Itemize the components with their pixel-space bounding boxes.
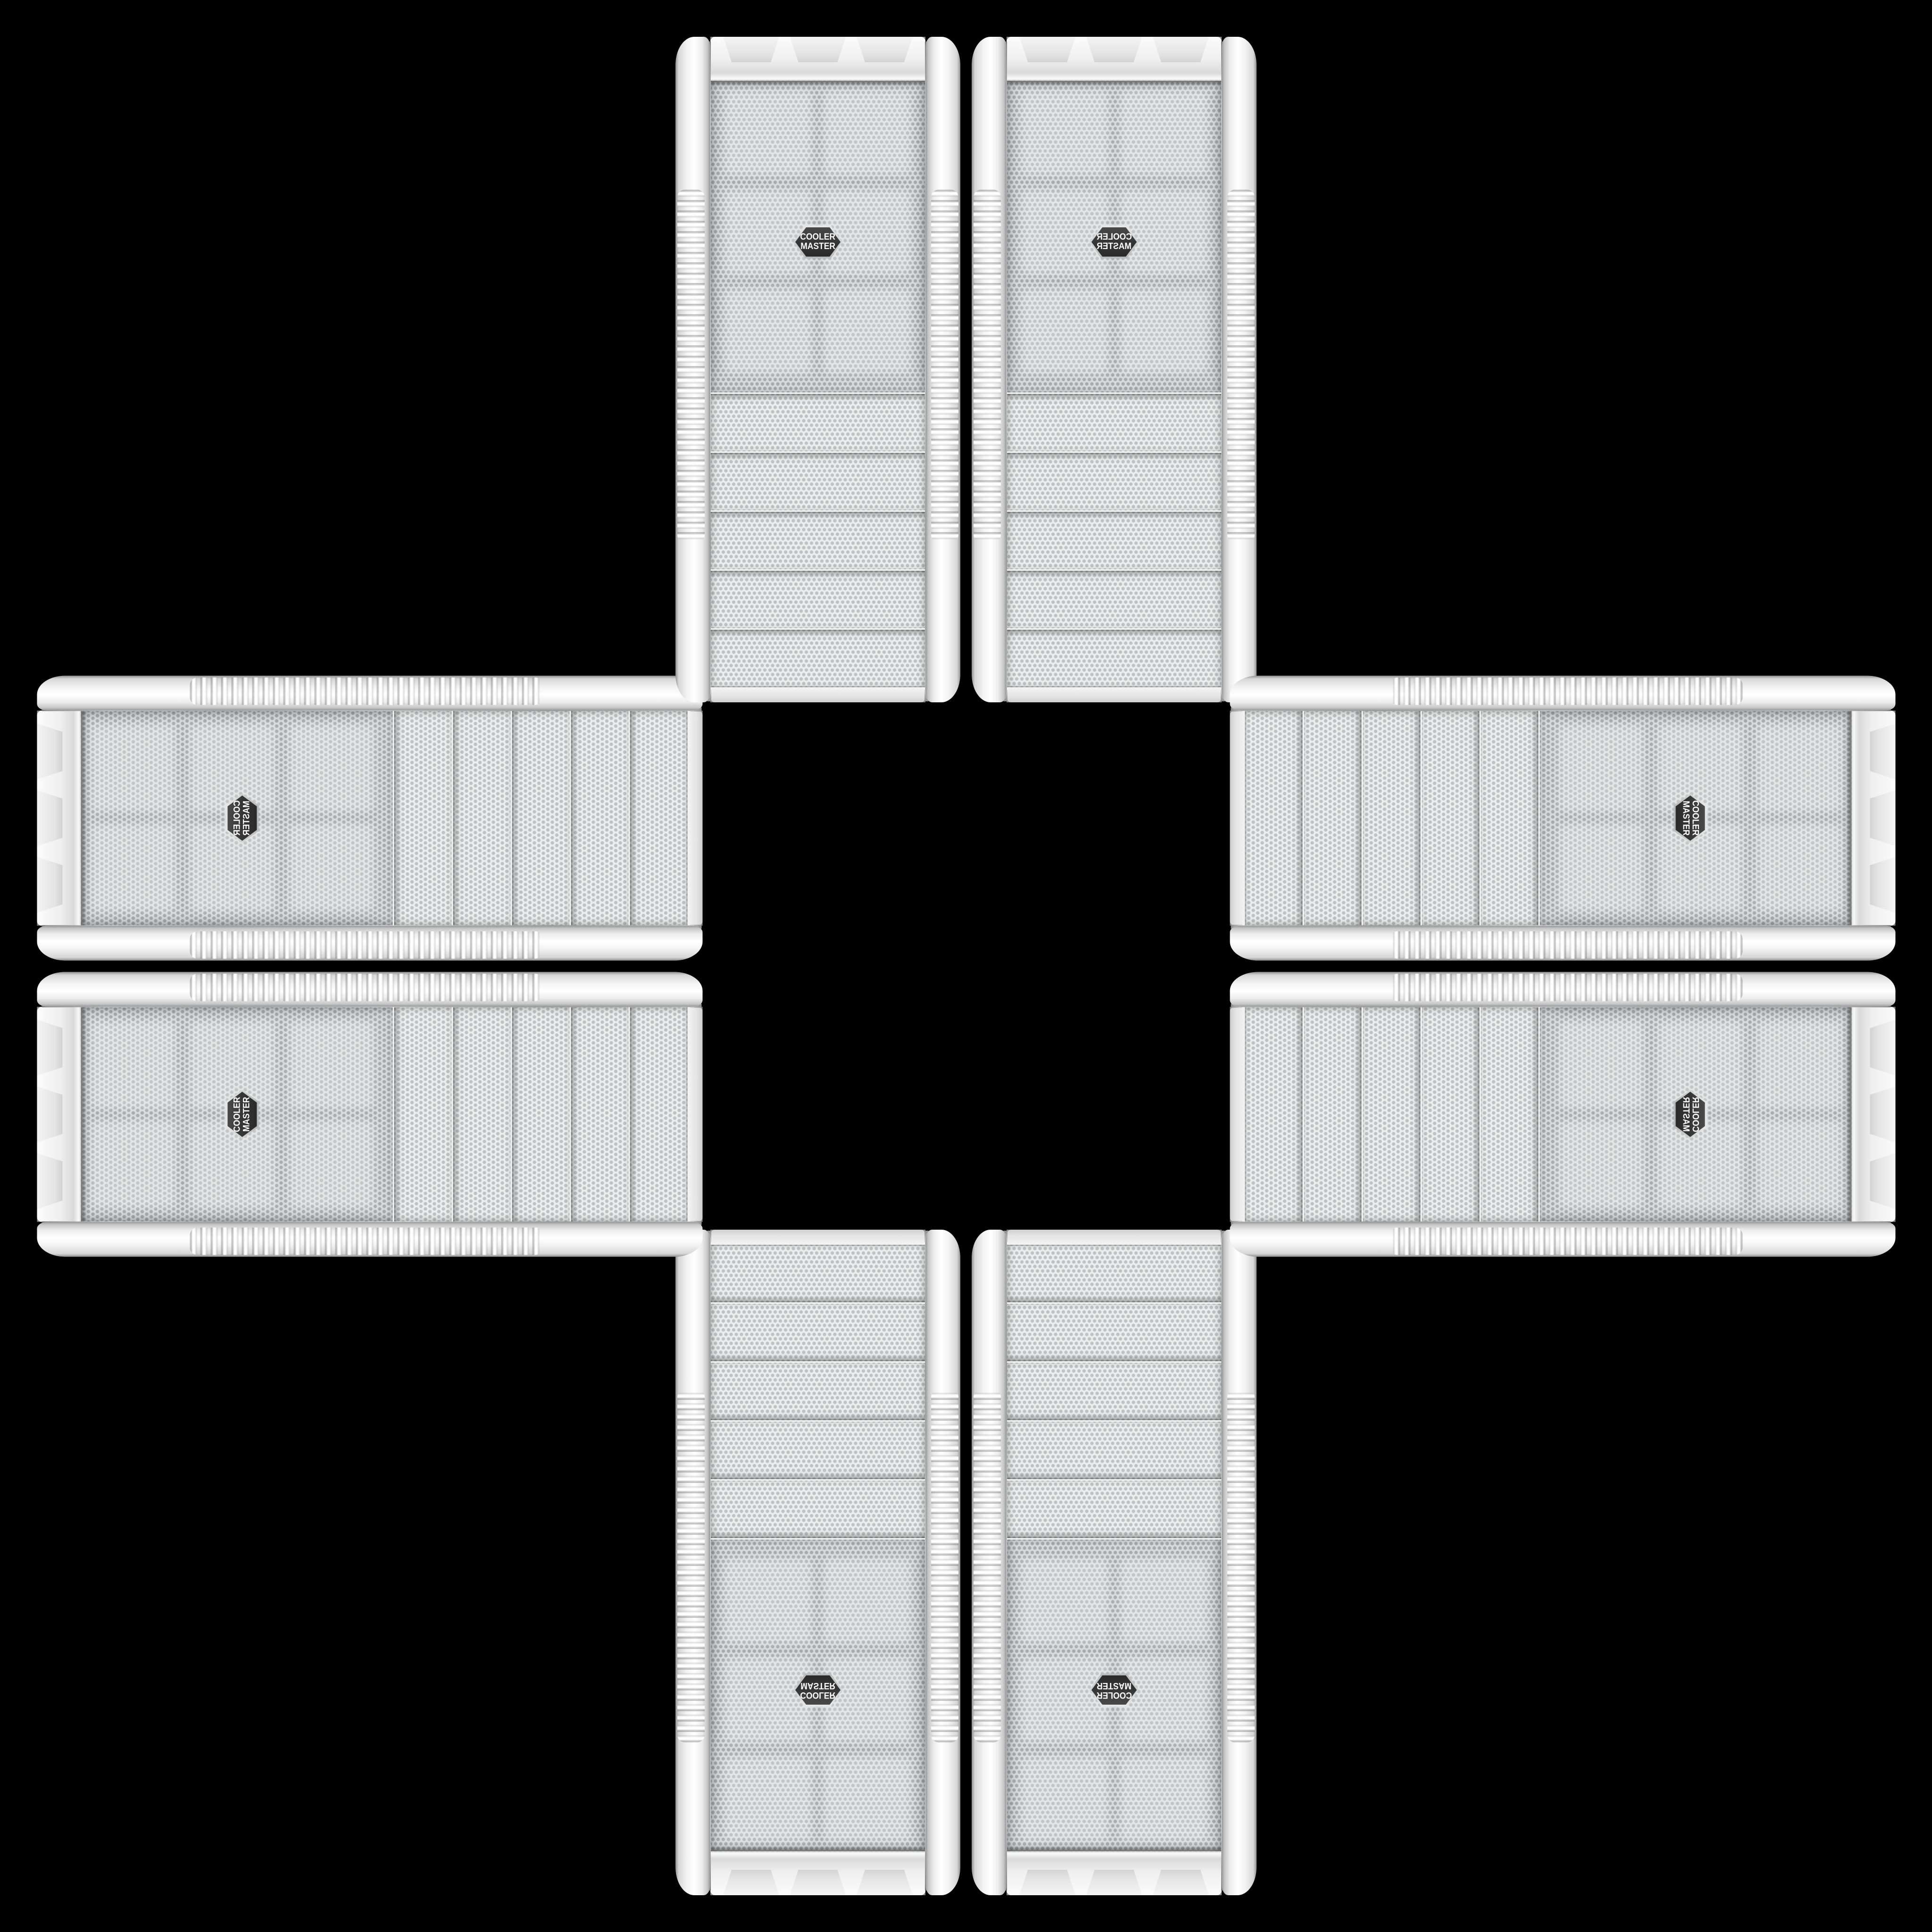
rail-grip-ribs	[190, 1227, 543, 1255]
pc-case-bottom-left: COOLER MASTER	[675, 1230, 960, 1895]
front-panel-column: COOLER MASTER	[1230, 711, 1896, 926]
badge-text-line2: MASTER	[800, 242, 835, 251]
front-mesh-grille: COOLER MASTER	[710, 1540, 925, 1853]
drive-bay-area	[710, 392, 925, 687]
front-panel-column: COOLER MASTER	[710, 1230, 925, 1895]
drive-bay-cover	[570, 711, 629, 926]
badge-text-line1: COOLER	[800, 233, 836, 242]
drive-bay-cover	[1481, 711, 1540, 926]
mesh-reflection	[1021, 190, 1108, 275]
mesh-reflection	[1021, 1657, 1108, 1742]
cap-facet	[857, 37, 913, 62]
cap-facet	[37, 724, 63, 780]
mesh-reflection	[1757, 1022, 1842, 1109]
side-rail-left	[1222, 1230, 1257, 1895]
base-strip	[688, 711, 703, 926]
cap-facet	[1870, 724, 1896, 780]
drive-bay-cover	[1007, 1481, 1222, 1540]
pc-case-left-bottom: COOLER MASTER	[37, 972, 703, 1257]
mesh-reflection	[1757, 725, 1842, 812]
rail-grip-ribs	[1227, 190, 1255, 542]
front-panel-column: COOLER MASTER	[37, 711, 703, 926]
drive-bay-area	[1245, 711, 1540, 926]
pc-case-right-bottom: COOLER MASTER	[1230, 972, 1896, 1257]
rail-grip-ribs	[190, 678, 543, 705]
rail-grip-ribs	[974, 1390, 1001, 1742]
mesh-reflection	[1021, 1558, 1108, 1643]
front-cap	[1853, 1007, 1896, 1222]
mesh-reflection	[190, 725, 275, 812]
side-rail-left	[1222, 37, 1257, 702]
side-rail-left	[675, 37, 710, 702]
base-strip	[1007, 1230, 1222, 1245]
front-panel-column: COOLER MASTER	[1007, 37, 1222, 702]
pc-case-top-left: COOLER MASTER	[675, 37, 960, 702]
drive-bay-cover	[629, 1007, 688, 1222]
badge-text-line1: COOLER	[1097, 233, 1132, 242]
drive-bay-cover	[1007, 1363, 1222, 1422]
side-rail-left	[37, 676, 703, 711]
mesh-reflection	[1757, 1121, 1842, 1208]
cap-facet	[1153, 1870, 1209, 1895]
mesh-reflection	[91, 1022, 176, 1109]
mesh-reflection	[91, 725, 176, 812]
mesh-reflection	[1021, 1757, 1108, 1841]
mesh-reflection	[1559, 1121, 1644, 1208]
drive-bay-area	[1007, 1245, 1222, 1540]
front-cap	[1007, 1853, 1222, 1895]
drive-bay-cover	[1007, 628, 1222, 687]
mesh-reflection	[289, 1121, 374, 1208]
badge-text-line1: COOLER	[233, 800, 242, 836]
mesh-reflection	[190, 1022, 275, 1109]
base-strip	[710, 1230, 925, 1245]
logo-badge-face: COOLER MASTER	[1676, 1092, 1705, 1137]
rail-grip-ribs	[1390, 1227, 1743, 1255]
drive-bay-cover	[1007, 1422, 1222, 1481]
mesh-reflection	[824, 289, 911, 374]
logo-badge-face: COOLER MASTER	[228, 1092, 257, 1137]
front-cap	[37, 711, 80, 926]
front-panel-column: COOLER MASTER	[1230, 1007, 1896, 1222]
mesh-reflection	[1021, 91, 1108, 175]
cap-facet	[1870, 1153, 1896, 1209]
front-mesh-grille: COOLER MASTER	[1007, 1540, 1222, 1853]
drive-bay-cover	[1007, 392, 1222, 451]
drive-bay-area	[393, 1007, 688, 1222]
drive-bay-cover	[393, 1007, 452, 1222]
front-panel-column: COOLER MASTER	[1007, 1230, 1222, 1895]
cap-facet	[790, 1870, 846, 1895]
drive-bay-cover	[1422, 711, 1481, 926]
mesh-reflection	[824, 1757, 911, 1841]
drive-bay-cover	[393, 711, 452, 926]
cap-facet	[37, 1020, 63, 1076]
badge-text-line2: MASTER	[800, 1681, 835, 1690]
mesh-reflection	[91, 824, 176, 911]
rail-grip-ribs	[190, 974, 543, 1001]
drive-bay-area	[393, 711, 688, 926]
badge-text-line1: COOLER	[1690, 1097, 1700, 1132]
mesh-reflection	[1120, 190, 1207, 275]
rail-grip-ribs	[1390, 931, 1743, 958]
mesh-reflection	[1120, 1558, 1207, 1643]
drive-bay-cover	[570, 1007, 629, 1222]
badge-text-line2: MASTER	[242, 801, 252, 836]
base-strip	[1230, 711, 1245, 926]
mesh-reflection	[1658, 1121, 1743, 1208]
drive-bay-cover	[452, 711, 511, 926]
logo-badge-face: COOLER MASTER	[1091, 1675, 1137, 1705]
mesh-reflection	[824, 1558, 911, 1643]
drive-bay-cover	[710, 1481, 925, 1540]
mesh-reflection	[724, 289, 812, 374]
collage-canvas: COOLER MASTER	[0, 0, 1932, 1932]
logo-badge-face: COOLER MASTER	[1676, 796, 1705, 841]
drive-bay-cover	[1245, 711, 1304, 926]
drive-bay-cover	[629, 711, 688, 926]
badge-text-line1: COOLER	[1690, 800, 1700, 836]
side-rail-right	[37, 926, 703, 961]
mesh-reflection	[1757, 824, 1842, 911]
mesh-reflection	[824, 190, 911, 275]
rail-grip-ribs	[974, 190, 1001, 542]
base-strip	[1230, 1007, 1245, 1222]
mesh-reflection	[1120, 91, 1207, 175]
drive-bay-cover	[1007, 451, 1222, 510]
side-rail-left	[37, 1222, 703, 1257]
drive-bay-cover	[1304, 711, 1363, 926]
rail-grip-ribs	[1390, 678, 1743, 705]
mesh-reflection	[1559, 1022, 1644, 1109]
mesh-reflection	[1120, 1657, 1207, 1742]
drive-bay-cover	[710, 1304, 925, 1363]
pc-case-bottom-right: COOLER MASTER	[972, 1230, 1257, 1895]
drive-bay-area	[1007, 392, 1222, 687]
mesh-reflection	[1658, 1022, 1743, 1109]
badge-text-line1: COOLER	[800, 1690, 836, 1699]
rail-grip-ribs	[190, 931, 543, 958]
mesh-reflection	[724, 91, 812, 175]
mesh-reflection	[289, 824, 374, 911]
drive-bay-cover	[1304, 1007, 1363, 1222]
cap-facet	[37, 857, 63, 913]
front-mesh-grille: COOLER MASTER	[710, 79, 925, 392]
drive-bay-cover	[1245, 1007, 1304, 1222]
rail-grip-ribs	[931, 1390, 958, 1742]
mesh-reflection	[724, 1657, 812, 1742]
pc-case-right-top: COOLER MASTER	[1230, 676, 1896, 961]
mesh-reflection	[724, 1757, 812, 1841]
drive-bay-cover	[710, 392, 925, 451]
cap-facet	[37, 1086, 63, 1142]
drive-bay-area	[710, 1245, 925, 1540]
badge-text-line1: COOLER	[1097, 1690, 1132, 1699]
cap-facet	[857, 1870, 913, 1895]
drive-bay-cover	[1007, 569, 1222, 628]
mesh-reflection	[724, 1558, 812, 1643]
cap-facet	[37, 790, 63, 846]
base-strip	[688, 1007, 703, 1222]
drive-bay-cover	[710, 628, 925, 687]
badge-text-line2: MASTER	[1681, 1097, 1690, 1132]
side-rail-left	[1230, 676, 1896, 711]
front-cap	[1853, 711, 1896, 926]
logo-badge-face: COOLER MASTER	[1091, 227, 1137, 257]
mesh-reflection	[1021, 289, 1108, 374]
front-cap	[710, 37, 925, 79]
drive-bay-cover	[710, 451, 925, 510]
mesh-reflection	[724, 190, 812, 275]
cap-facet	[37, 1153, 63, 1209]
drive-bay-cover	[710, 569, 925, 628]
drive-bay-cover	[511, 711, 570, 926]
side-rail-right	[925, 37, 960, 702]
logo-badge-face: COOLER MASTER	[795, 1675, 841, 1705]
cap-facet	[1019, 1870, 1075, 1895]
cap-facet	[790, 37, 846, 62]
cap-facet	[1870, 1086, 1896, 1142]
drive-bay-cover	[452, 1007, 511, 1222]
mesh-reflection	[289, 1022, 374, 1109]
front-mesh-grille: COOLER MASTER	[1540, 1007, 1853, 1222]
cap-facet	[723, 37, 779, 62]
rail-grip-ribs	[677, 190, 705, 542]
front-mesh-grille: COOLER MASTER	[80, 711, 393, 926]
mesh-reflection	[190, 1121, 275, 1208]
drive-bay-cover	[1363, 711, 1422, 926]
logo-badge-face: COOLER MASTER	[795, 227, 841, 257]
mesh-reflection	[289, 725, 374, 812]
front-panel-column: COOLER MASTER	[710, 37, 925, 702]
drive-bay-cover	[1007, 1245, 1222, 1304]
rail-grip-ribs	[931, 190, 958, 542]
drive-bay-cover	[1363, 1007, 1422, 1222]
badge-text-line2: MASTER	[1681, 801, 1690, 836]
drive-bay-cover	[710, 510, 925, 569]
cap-facet	[1870, 1020, 1896, 1076]
front-mesh-grille: COOLER MASTER	[1007, 79, 1222, 392]
drive-bay-cover	[1481, 1007, 1540, 1222]
front-cap	[710, 1853, 925, 1895]
cap-facet	[1019, 37, 1075, 62]
drive-bay-cover	[1007, 1304, 1222, 1363]
mesh-reflection	[1559, 725, 1644, 812]
mesh-reflection	[1120, 1757, 1207, 1841]
side-rail-right	[972, 37, 1007, 702]
cap-facet	[1086, 37, 1142, 62]
base-strip	[710, 687, 925, 702]
side-rail-right	[1230, 926, 1896, 961]
drive-bay-cover	[1422, 1007, 1481, 1222]
rail-grip-ribs	[1227, 1390, 1255, 1742]
mesh-reflection	[91, 1121, 176, 1208]
drive-bay-cover	[1007, 510, 1222, 569]
drive-bay-cover	[710, 1422, 925, 1481]
rail-grip-ribs	[677, 1390, 705, 1742]
cap-facet	[1870, 857, 1896, 913]
front-panel-column: COOLER MASTER	[37, 1007, 703, 1222]
rail-grip-ribs	[1390, 974, 1743, 1001]
front-mesh-grille: COOLER MASTER	[1540, 711, 1853, 926]
mesh-reflection	[1559, 824, 1644, 911]
badge-text-line2: MASTER	[1097, 1681, 1132, 1690]
drive-bay-cover	[710, 1245, 925, 1304]
base-strip	[1007, 687, 1222, 702]
badge-text-line1: COOLER	[233, 1097, 242, 1132]
front-cap	[37, 1007, 80, 1222]
pc-case-left-top: COOLER MASTER	[37, 676, 703, 961]
badge-text-line2: MASTER	[1097, 242, 1132, 251]
side-rail-right	[925, 1230, 960, 1895]
cap-facet	[1086, 1870, 1142, 1895]
drive-bay-cover	[511, 1007, 570, 1222]
drive-bay-cover	[710, 1363, 925, 1422]
cap-facet	[723, 1870, 779, 1895]
side-rail-right	[37, 972, 703, 1007]
mesh-reflection	[1120, 289, 1207, 374]
drive-bay-area	[1245, 1007, 1540, 1222]
badge-text-line2: MASTER	[242, 1097, 252, 1132]
cap-facet	[1870, 790, 1896, 846]
cap-facet	[1153, 37, 1209, 62]
mesh-reflection	[190, 824, 275, 911]
logo-badge-face: COOLER MASTER	[228, 796, 257, 841]
pc-case-top-right: COOLER MASTER	[972, 37, 1257, 702]
side-rail-right	[972, 1230, 1007, 1895]
mesh-reflection	[824, 91, 911, 175]
mesh-reflection	[824, 1657, 911, 1742]
side-rail-left	[1230, 1222, 1896, 1257]
mesh-reflection	[1658, 824, 1743, 911]
side-rail-left	[675, 1230, 710, 1895]
front-mesh-grille: COOLER MASTER	[80, 1007, 393, 1222]
front-cap	[1007, 37, 1222, 79]
mesh-reflection	[1658, 725, 1743, 812]
side-rail-right	[1230, 972, 1896, 1007]
